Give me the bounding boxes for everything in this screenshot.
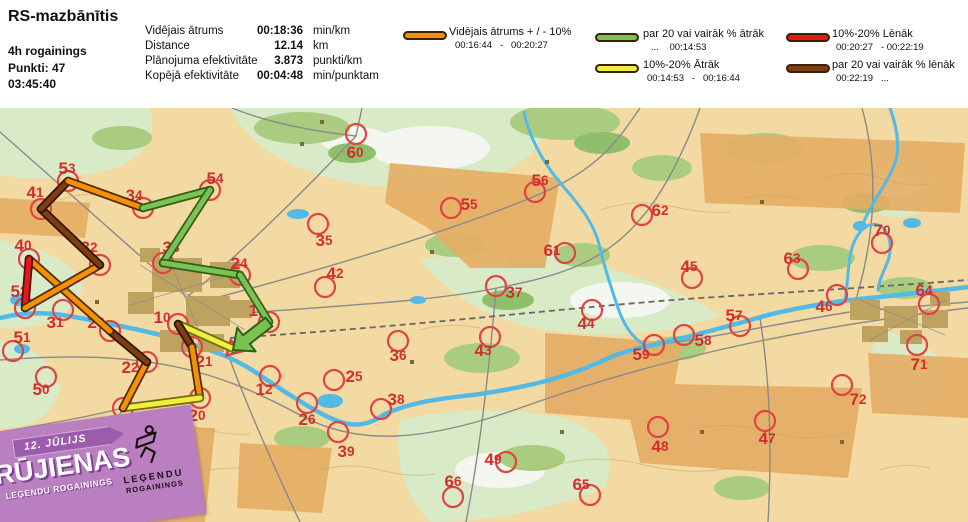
stat-value-distance: 12.14	[240, 40, 303, 52]
checkpoint-label-50: 50	[33, 380, 50, 399]
legend-line-slower	[786, 33, 830, 42]
legend-line-much-slower	[786, 64, 830, 73]
stat-value-total-efficiency: 00:04:48	[240, 70, 303, 82]
stat-unit-distance: km	[313, 40, 328, 52]
checkpoint-label-64: 64	[916, 281, 933, 300]
event-duration: 4h rogainings	[8, 44, 87, 58]
checkpoint-label-60: 60	[347, 143, 364, 162]
checkpoint-label-41: 41	[27, 183, 44, 202]
checkpoint-label-44: 44	[578, 314, 595, 333]
checkpoint-label-43: 43	[475, 341, 492, 360]
checkpoint-label-71: 71	[911, 355, 928, 374]
checkpoint-label-54: 54	[207, 169, 224, 188]
badge-logo: LEĢENDU ROGAININGS	[110, 420, 193, 497]
stat-value-plan-efficiency: 3.873	[240, 55, 303, 67]
checkpoint-label-53: 53	[59, 159, 76, 178]
stat-unit-avg-pace: min/km	[313, 25, 350, 37]
checkpoint-label-40: 40	[15, 236, 32, 255]
checkpoint-label-56: 56	[532, 171, 549, 190]
checkpoint-label-55: 55	[461, 195, 478, 214]
checkpoint-label-26: 26	[299, 410, 316, 429]
checkpoint-label-46: 46	[816, 297, 833, 316]
header: RS-mazbānītis 4h rogainings Punkti: 47 0…	[0, 0, 968, 108]
checkpoint-label-51: 51	[14, 328, 31, 347]
checkpoint-label-38: 38	[388, 390, 405, 409]
legend-line-average	[403, 31, 447, 40]
stat-unit-total-efficiency: min/punktam	[313, 70, 379, 82]
checkpoint-label-65: 65	[573, 475, 590, 494]
checkpoint-label-63: 63	[784, 249, 801, 268]
stat-value-avg-pace: 00:18:36	[240, 25, 303, 37]
checkpoint-label-48: 48	[652, 437, 669, 456]
checkpoint-label-39: 39	[338, 442, 355, 461]
checkpoint-label-59: 59	[633, 345, 650, 364]
checkpoint-label-62: 62	[652, 201, 669, 220]
checkpoint-label-58: 58	[695, 331, 712, 350]
checkpoint-label-42: 42	[327, 264, 344, 283]
rogaining-analysis-page: 1021203022234052324153345433241160355556…	[0, 0, 968, 522]
checkpoint-label-45: 45	[681, 257, 698, 276]
checkpoint-label-49: 49	[485, 450, 502, 469]
checkpoint-label-10: 10	[154, 308, 171, 327]
runner-icon	[126, 422, 171, 467]
checkpoint-label-35: 35	[316, 231, 333, 250]
page-title: RS-mazbānītis	[8, 8, 118, 26]
checkpoint-label-61: 61	[544, 241, 561, 260]
stat-unit-plan-efficiency: punkti/km	[313, 55, 362, 67]
checkpoint-label-47: 47	[759, 429, 776, 448]
checkpoint-label-37: 37	[506, 283, 523, 302]
legend-line-much-faster	[595, 33, 639, 42]
checkpoint-label-25: 25	[346, 367, 363, 386]
checkpoint-label-70: 70	[874, 221, 891, 240]
checkpoint-label-72: 72	[850, 390, 867, 409]
elapsed-time: 03:45:40	[8, 77, 56, 91]
checkpoint-label-36: 36	[390, 346, 407, 365]
points-total: Punkti: 47	[8, 61, 65, 75]
legend-line-faster	[595, 64, 639, 73]
checkpoint-label-66: 66	[445, 472, 462, 491]
checkpoint-label-22: 22	[122, 358, 139, 377]
checkpoint-label-57: 57	[726, 306, 743, 325]
checkpoint-label-12: 12	[256, 380, 273, 399]
checkpoint-label-31: 31	[47, 313, 64, 332]
